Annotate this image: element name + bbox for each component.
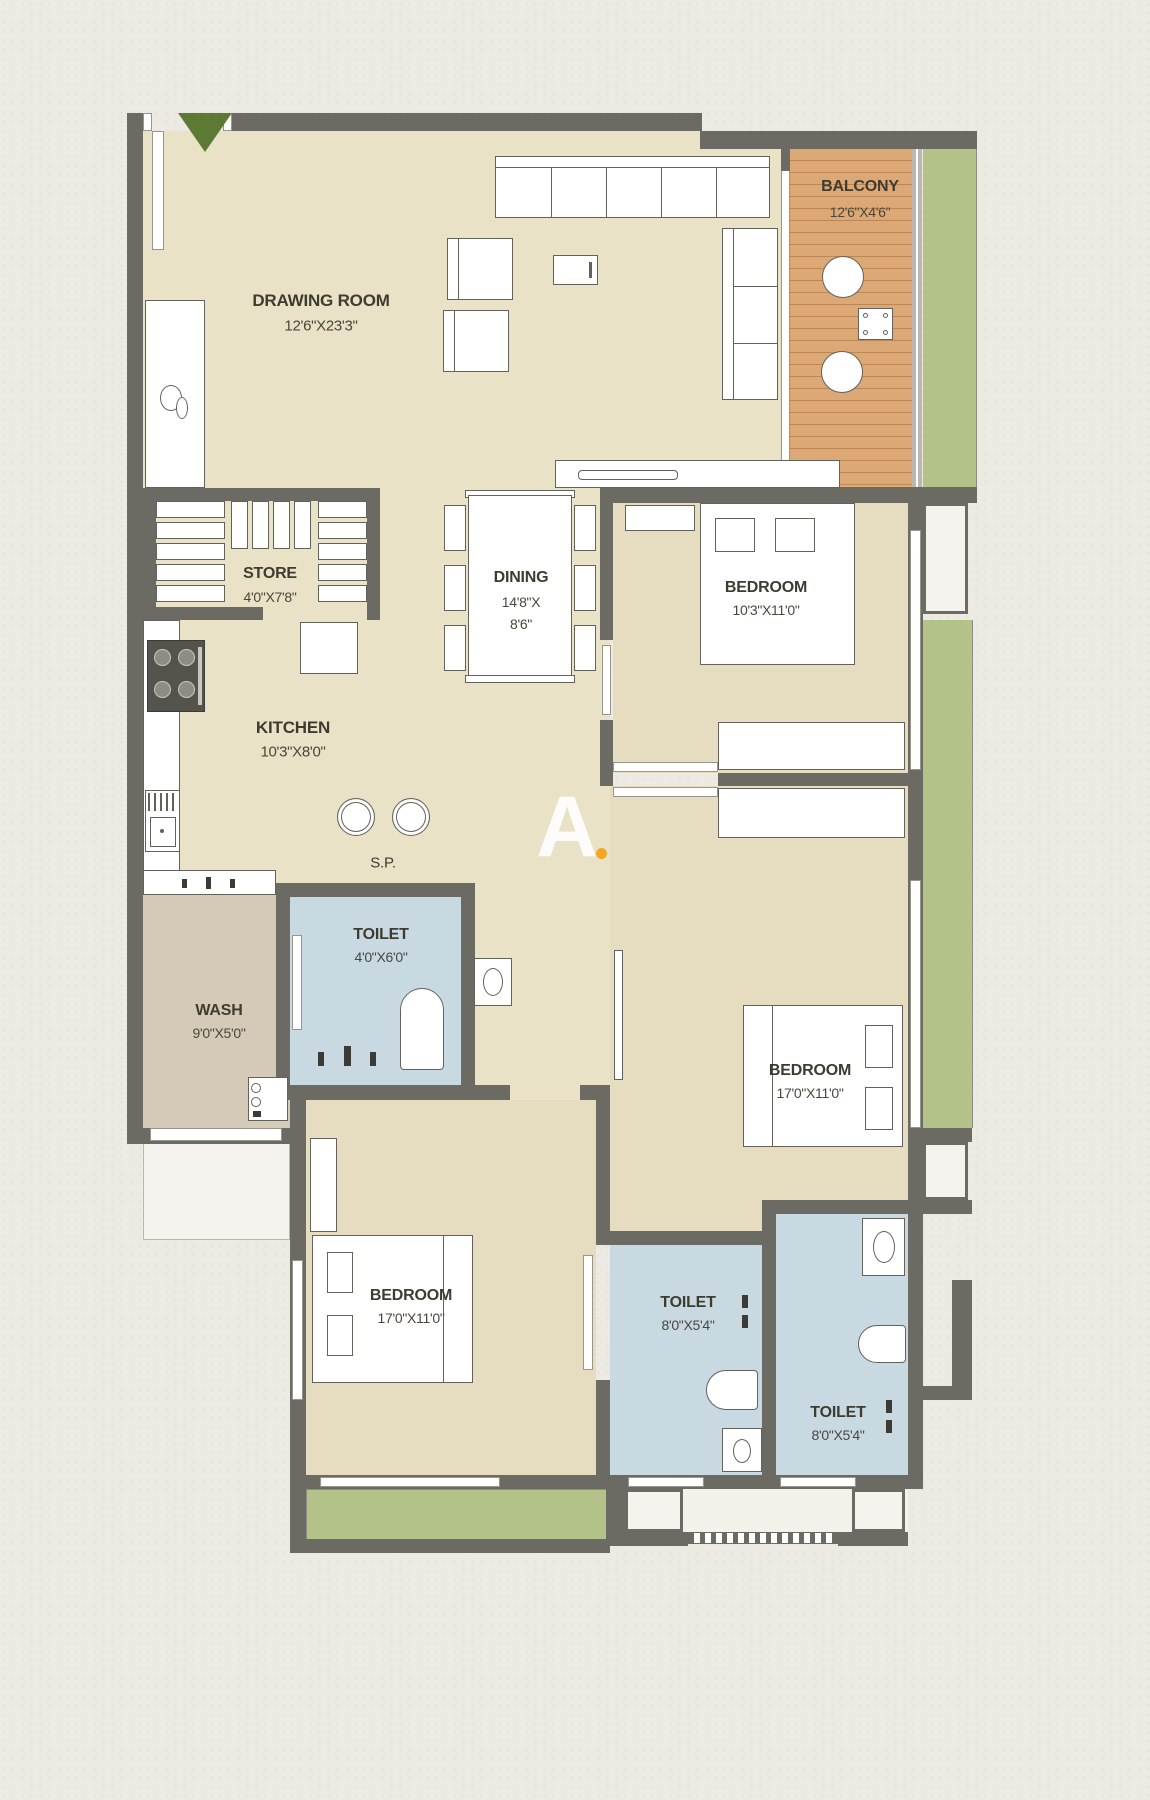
toilet-br-label: TOILET	[810, 1404, 865, 1422]
store-shelf	[156, 585, 225, 602]
wardrobe	[310, 1138, 337, 1232]
wash-label: WASH	[195, 1002, 242, 1020]
bedroom-mid-dims: 17'0"X11'0"	[776, 1085, 843, 1101]
door-leaf-bedroom-bottom	[583, 1255, 593, 1370]
store-shelf	[156, 501, 225, 518]
dining-chair	[574, 625, 596, 671]
store-shelf	[318, 543, 367, 560]
round-basin	[337, 798, 375, 836]
sofa	[722, 228, 778, 400]
store-shelf	[156, 522, 225, 539]
window-bl-bottom	[320, 1477, 500, 1487]
wall-toilet-bm-top	[596, 1231, 762, 1245]
door-toilet-bm	[628, 1477, 704, 1487]
round-basin	[392, 798, 430, 836]
washbasin	[862, 1218, 905, 1276]
wall-bedroom-top-left-a	[600, 488, 613, 640]
tap-icon	[886, 1400, 892, 1413]
bedroom-top-dims: 10'3"X11'0"	[732, 602, 799, 618]
store-shelf	[273, 501, 290, 549]
window-bedroom-mid	[910, 880, 921, 1128]
wall-top	[232, 113, 702, 131]
stove-icon	[147, 640, 205, 712]
armchair	[443, 310, 509, 372]
door-leaf-hall	[602, 645, 611, 715]
wash-dims: 9'0"X5'0"	[192, 1025, 245, 1041]
duct	[852, 1489, 905, 1532]
tap-icon	[742, 1315, 748, 1328]
balcony-dims: 12'6"X4'6"	[830, 204, 891, 220]
wall-store-bottom	[143, 607, 263, 620]
toilet-bm-label: TOILET	[660, 1294, 715, 1312]
balcony-label: BALCONY	[821, 178, 899, 196]
wc-toilet	[858, 1325, 906, 1363]
wash-counter	[143, 870, 276, 895]
tap-icon	[370, 1052, 376, 1066]
green-strip-bottom	[306, 1489, 612, 1541]
wall-green-bottom	[290, 1539, 610, 1553]
door-jamb	[143, 113, 152, 131]
wall-toilet-mid-top	[276, 883, 475, 897]
wall-store-top	[143, 488, 380, 501]
cabinet	[300, 622, 358, 674]
tap-icon	[344, 1046, 351, 1066]
balcony-railing	[912, 149, 922, 487]
drawing-room-label: DRAWING ROOM	[252, 291, 389, 311]
wall-toilet-br-top	[762, 1200, 908, 1214]
pillow	[775, 518, 815, 552]
door-leaf-toilet-mid	[292, 935, 302, 1030]
store-shelf	[294, 501, 311, 549]
wall-store-right	[367, 488, 380, 620]
bedroom-mid-label: BEDROOM	[769, 1062, 851, 1080]
main-door-leaf	[152, 131, 164, 250]
wardrobe	[718, 722, 905, 770]
balcony-sliding-door	[781, 171, 790, 465]
sideboard	[555, 460, 840, 488]
toilet-mid-dims: 4'0"X6'0"	[354, 949, 407, 965]
floor-plan-page: { "meta": { "type": "apartment-floor-pla…	[0, 0, 1150, 1800]
dining-table-cap	[465, 675, 575, 683]
store-shelf	[231, 501, 248, 549]
store-shelf	[252, 501, 269, 549]
wall-between-bedrooms	[718, 773, 908, 786]
bedroom-bottom-dims: 17'0"X11'0"	[377, 1310, 444, 1326]
window-wash	[150, 1128, 282, 1141]
brand-watermark: A	[536, 787, 598, 867]
wall-left-outer	[127, 113, 143, 1144]
dining-label: DINING	[494, 569, 549, 587]
wall-bedroom-top-left-b	[600, 720, 613, 786]
balcony-chair	[822, 256, 864, 298]
open-area-below-wash	[143, 1140, 290, 1240]
wall-duct-bottom	[908, 1200, 972, 1214]
wall-right-step-h	[908, 1386, 972, 1400]
wall-right-step-v	[952, 1280, 972, 1400]
pillow	[865, 1025, 893, 1068]
dining-chair	[444, 505, 466, 551]
door-panel-bedroom-mid	[613, 787, 718, 797]
kitchen-sink	[145, 790, 180, 852]
brand-watermark-dot	[596, 848, 607, 859]
washing-machine	[248, 1077, 288, 1121]
store-dims: 4'0"X7'8"	[243, 589, 296, 605]
store-shelf	[318, 501, 367, 518]
wall-bl-right-b	[596, 1380, 610, 1489]
duct	[923, 503, 968, 614]
wall-bl-right-a	[596, 1100, 610, 1240]
side-table	[553, 255, 598, 285]
door-toilet-br	[780, 1477, 856, 1487]
balcony-chair	[821, 351, 863, 393]
store-shelf	[156, 564, 225, 581]
bedroom-bottom-label: BEDROOM	[370, 1287, 452, 1305]
drawing-room-dims: 12'6"X23'3"	[284, 318, 357, 335]
wall-toilet-mid-right	[461, 883, 475, 1085]
geyser	[722, 1428, 762, 1472]
dining-dims-1: 14'8"X	[502, 594, 541, 610]
store-shelf	[318, 522, 367, 539]
store-shelf	[318, 585, 367, 602]
wardrobe	[718, 788, 905, 838]
wall-toilet-mid-left	[276, 883, 290, 1085]
toilet-mid-label: TOILET	[353, 926, 408, 944]
balcony-wood-floor	[790, 149, 912, 487]
kitchen-label: KITCHEN	[256, 718, 330, 738]
dining-dims-2: 8'6"	[510, 616, 532, 632]
wall-balcony-stub-top	[781, 149, 790, 171]
bedroom-top-label: BEDROOM	[725, 579, 807, 597]
floor-plan: A DRAWING ROOM 12'6"X23'3" BALCONY 12'6"…	[0, 0, 1150, 1800]
pillow	[715, 518, 755, 552]
wall-lobby-bottom-right	[838, 1532, 908, 1546]
dining-chair	[444, 565, 466, 611]
store-label: STORE	[243, 565, 297, 583]
wardrobe	[625, 505, 695, 531]
entrance-arrow-icon	[178, 113, 232, 152]
wall-store-left	[143, 488, 156, 620]
balcony-table	[858, 308, 893, 340]
armchair	[447, 238, 513, 300]
dining-chair	[444, 625, 466, 671]
wall-lobby-bottom-left	[606, 1532, 688, 1546]
kitchen-dims: 10'3"X8'0"	[260, 744, 325, 761]
door-panel-bedroom-top	[613, 762, 718, 772]
tap-icon	[886, 1420, 892, 1433]
pillow	[327, 1315, 353, 1356]
washbasin	[474, 958, 512, 1006]
tap-icon	[742, 1295, 748, 1308]
threshold-grill	[688, 1532, 838, 1544]
wall-toilets-divider	[762, 1214, 776, 1475]
dining-chair	[574, 565, 596, 611]
pillow	[327, 1252, 353, 1293]
sp-label: S.P.	[370, 855, 396, 872]
tall-cabinet	[145, 300, 205, 488]
wall-toilet-mid-bottom-a	[276, 1085, 510, 1100]
slim-cabinet	[614, 950, 623, 1080]
sofa	[495, 156, 770, 218]
duct	[923, 1142, 968, 1200]
pillow	[865, 1087, 893, 1130]
store-shelf	[318, 564, 367, 581]
wall-toilet-mid-bottom-b	[580, 1085, 610, 1100]
toilet-bm-dims: 8'0"X5'4"	[661, 1317, 714, 1333]
toilet-br-dims: 8'0"X5'4"	[811, 1427, 864, 1443]
duct	[625, 1489, 683, 1532]
wall-duct-top	[908, 1128, 972, 1142]
wc-toilet	[706, 1370, 758, 1410]
dining-chair	[574, 505, 596, 551]
green-strip-right	[923, 620, 973, 1128]
window-bedroom-bottom	[292, 1260, 303, 1400]
green-strip-top-right	[923, 149, 977, 487]
store-shelf	[156, 543, 225, 560]
window-bedroom-top	[910, 530, 921, 770]
tap-icon	[318, 1052, 324, 1066]
wc-toilet	[400, 988, 444, 1070]
wall-balcony-top	[700, 131, 977, 149]
